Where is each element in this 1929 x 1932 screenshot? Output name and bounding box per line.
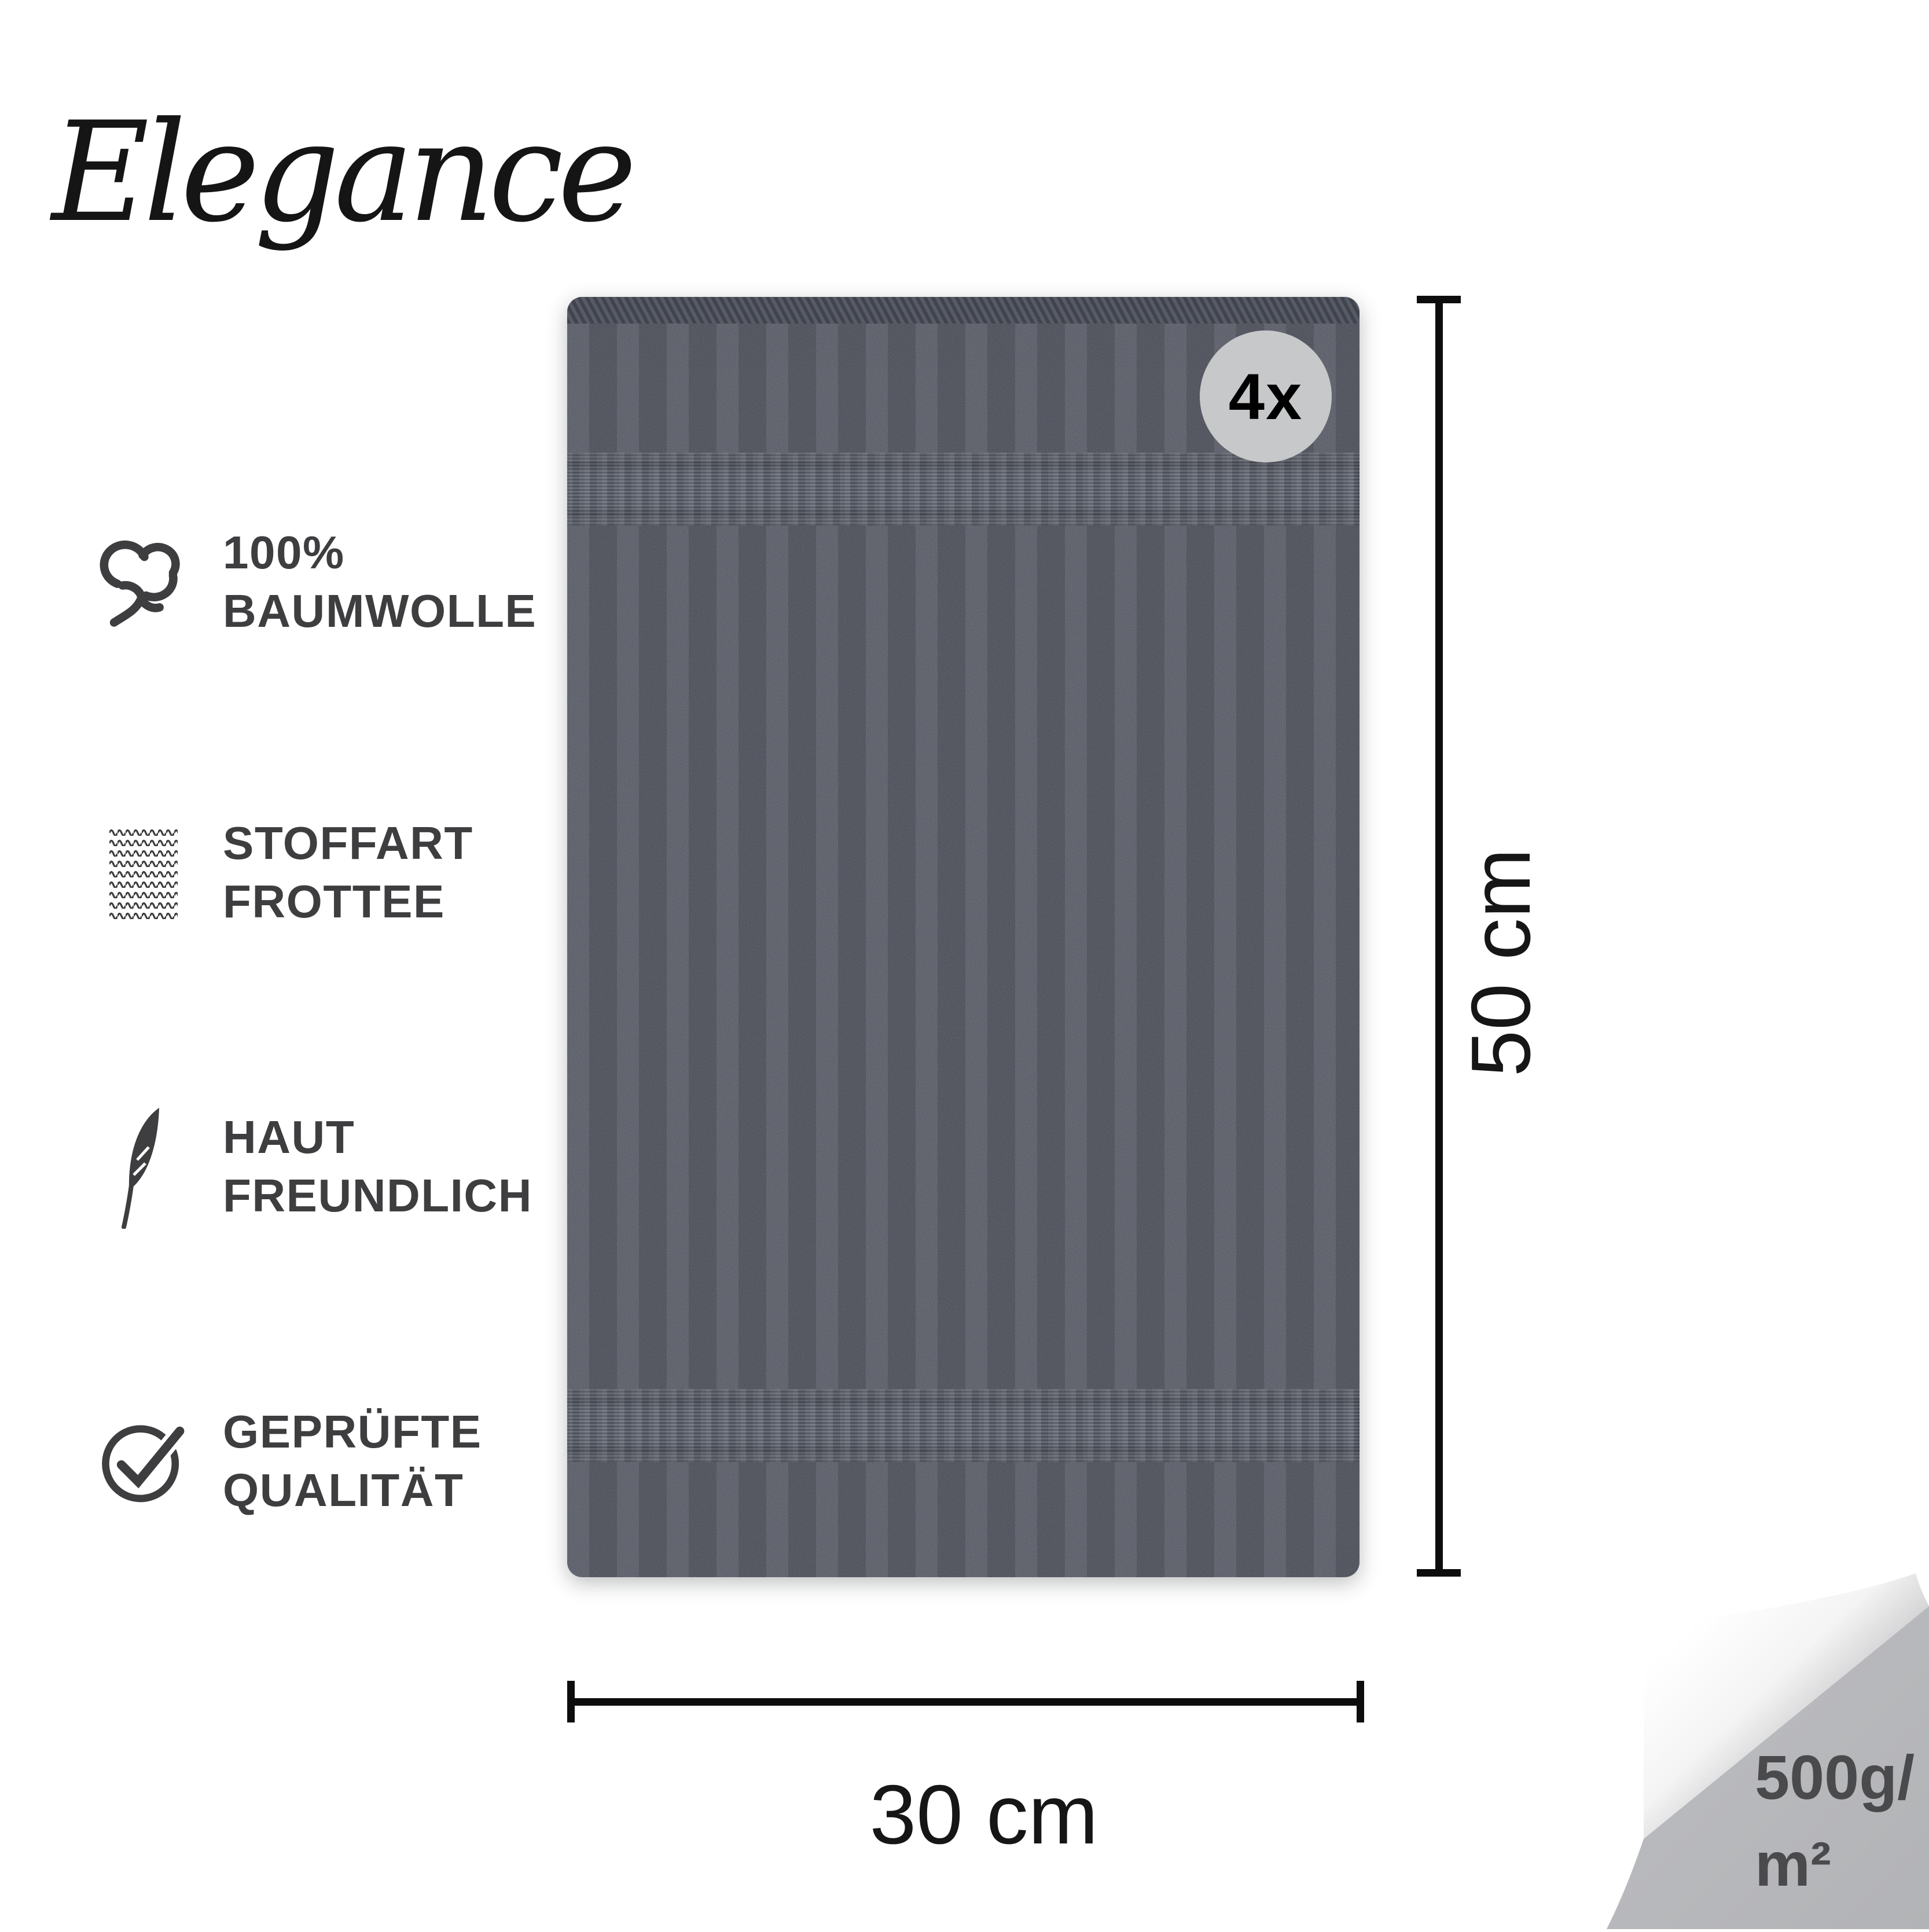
knit-fabric-icon xyxy=(95,806,191,939)
width-dimension-cap-left xyxy=(567,1681,575,1722)
width-dimension-cap-right xyxy=(1357,1681,1364,1722)
towel-border-band-top xyxy=(567,453,1360,526)
cotton-icon xyxy=(95,515,191,648)
feature-cotton: 100% BAUMWOLLE xyxy=(95,515,537,648)
weight-value-line1: 500g/ xyxy=(1755,1742,1915,1812)
quantity-badge: 4x xyxy=(1200,330,1332,462)
height-label: 50 cm xyxy=(1408,870,1593,1055)
towel-selvage-edge xyxy=(567,297,1360,324)
check-circle-icon xyxy=(95,1394,191,1527)
width-label: 30 cm xyxy=(833,1760,1134,1869)
feature-label: GEPRÜFTE QUALITÄT xyxy=(223,1402,482,1519)
height-dimension-cap-top xyxy=(1417,296,1461,303)
towel-border-band-bottom xyxy=(567,1389,1360,1462)
weight-corner: 500g/ m² xyxy=(1592,1557,1929,1929)
feature-label: 100% BAUMWOLLE xyxy=(223,523,537,640)
feather-icon xyxy=(95,1100,191,1233)
feature-label: HAUT FREUNDLICH xyxy=(223,1108,532,1225)
feature-skin: HAUT FREUNDLICH xyxy=(95,1100,532,1233)
weight-value-line2: m² xyxy=(1755,1829,1831,1899)
height-dimension-cap-bottom xyxy=(1417,1569,1461,1577)
feature-fabric: STOFFART FROTTEE xyxy=(95,806,473,939)
brand-logo: Elegance xyxy=(83,51,600,294)
towel-image: 4x xyxy=(567,297,1360,1577)
width-dimension-line xyxy=(571,1698,1360,1706)
feature-quality: GEPRÜFTE QUALITÄT xyxy=(95,1394,482,1527)
feature-label: STOFFART FROTTEE xyxy=(223,814,473,931)
